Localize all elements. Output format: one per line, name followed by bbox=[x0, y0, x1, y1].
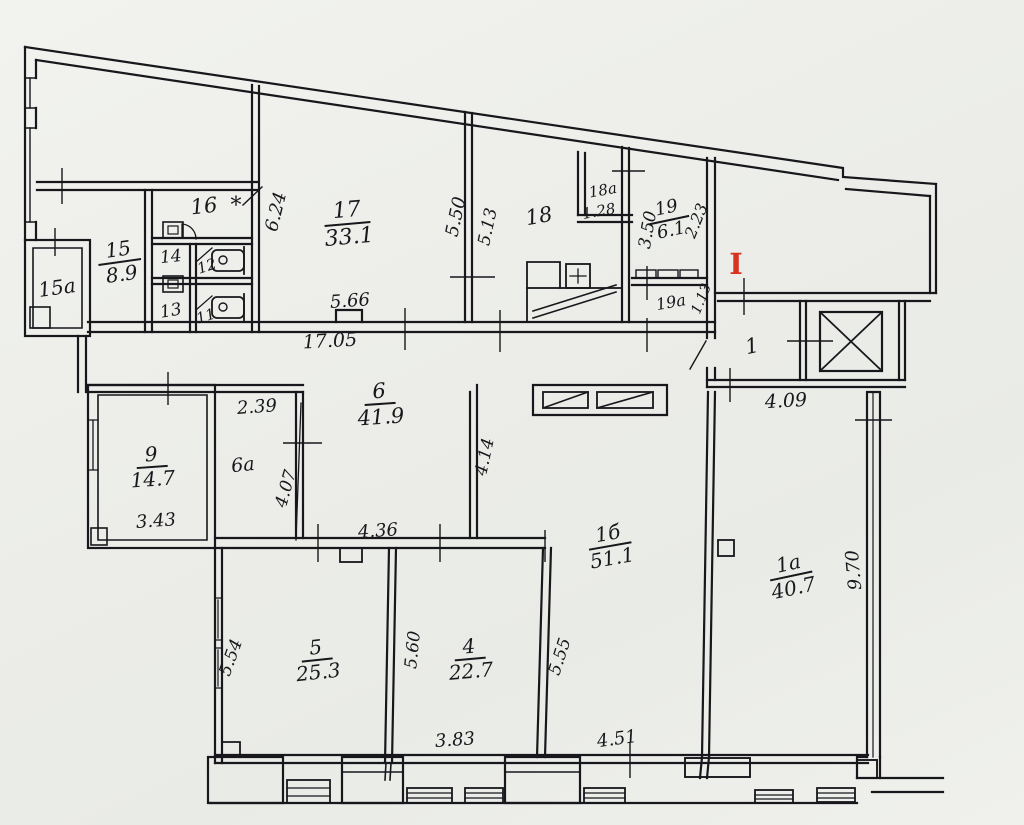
room-label-15a: 15а bbox=[37, 275, 77, 301]
floor-plan-drawing bbox=[0, 0, 1024, 825]
room-number: 6 bbox=[363, 379, 396, 406]
room-label-18: 18 bbox=[524, 203, 554, 229]
room-label-4: 4 22.7 bbox=[446, 634, 494, 684]
toilet-room11 bbox=[212, 297, 244, 318]
door-threshold-room5 bbox=[340, 548, 362, 562]
room-label-5: 5 25.3 bbox=[292, 635, 341, 685]
balcony bbox=[685, 758, 750, 777]
room-label-16: 16 bbox=[190, 194, 219, 219]
room-area: 14.7 bbox=[130, 467, 176, 491]
room-label-13: 13 bbox=[159, 301, 183, 322]
room-number: 17 bbox=[323, 197, 371, 227]
room-label-1b: 1б 51.1 bbox=[584, 519, 636, 572]
section-mark: I bbox=[729, 249, 743, 279]
room-area: 22.7 bbox=[448, 659, 494, 684]
vent-duct-group bbox=[533, 385, 667, 415]
dim-room9-width: 3.43 bbox=[135, 511, 176, 533]
room-number: 9 bbox=[135, 443, 167, 469]
dim-room17-inner-width: 5.66 bbox=[329, 291, 370, 313]
sink-room14 bbox=[163, 222, 183, 238]
dim-hall6-bottom-width: 4.36 bbox=[357, 521, 398, 543]
dim-room6a-width: 2.39 bbox=[236, 397, 277, 419]
window-room9 bbox=[88, 420, 98, 470]
room-label-14: 14 bbox=[159, 248, 182, 268]
room-label-9: 9 14.7 bbox=[128, 443, 176, 492]
corridor-wall bbox=[88, 322, 715, 332]
scanned-floor-plan: 15а 15 8.9 16 * 14 13 12 11 17 33.1 18 1… bbox=[0, 0, 1024, 825]
rack-room19a bbox=[636, 270, 656, 278]
room-area: 25.3 bbox=[295, 660, 341, 686]
room-label-1a: 1а 40.7 bbox=[764, 549, 817, 603]
room-area: 33.1 bbox=[324, 224, 375, 251]
room-label-6: 6 41.9 bbox=[355, 378, 405, 429]
dim-room5-right-height: 5.60 bbox=[403, 630, 425, 670]
wall-box-room1a bbox=[718, 540, 734, 556]
stair-step bbox=[527, 262, 560, 288]
door-arc-room16 bbox=[182, 224, 196, 239]
outer-wall-top bbox=[25, 47, 936, 184]
dim-corridor-total-width: 17.05 bbox=[302, 331, 357, 354]
dim-room1a-height: 9.70 bbox=[844, 549, 866, 591]
room-label-6a: 6а bbox=[230, 455, 255, 477]
room-area: 41.9 bbox=[357, 404, 405, 429]
room-label-15: 15 8.9 bbox=[95, 236, 144, 288]
outer-wall-right-top bbox=[930, 184, 936, 293]
room-label-17: 17 33.1 bbox=[321, 197, 374, 251]
dim-room1-width: 4.09 bbox=[764, 391, 807, 413]
room16-note-asterisk: * bbox=[231, 194, 242, 217]
door-leaf-room1 bbox=[690, 341, 706, 369]
dim-room4-bottom-width: 3.83 bbox=[434, 730, 475, 752]
